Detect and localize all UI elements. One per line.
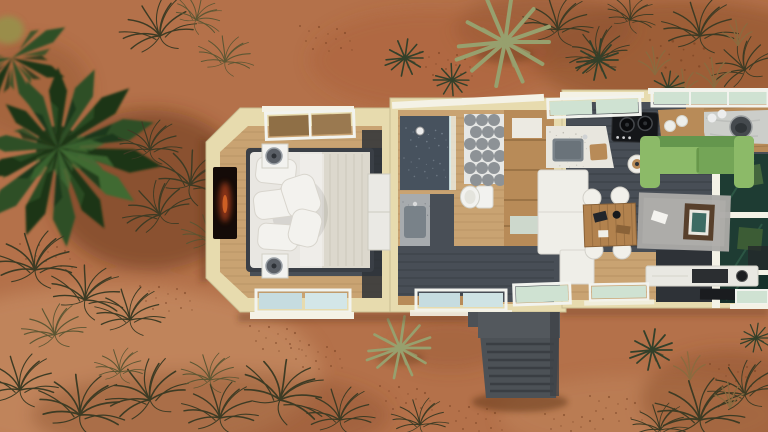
window-sill (250, 312, 354, 319)
plate (677, 116, 688, 127)
nightstand-top (262, 144, 288, 168)
framed-photo (691, 213, 706, 233)
accent-pattern-wall (464, 114, 506, 186)
dining-chair (611, 187, 629, 205)
window-sill (730, 304, 768, 309)
tray-coffee-table (683, 203, 715, 241)
vanity-sink (400, 194, 435, 246)
faucet (413, 202, 417, 206)
render-viewport (0, 0, 768, 432)
nightstand-bottom (262, 254, 288, 278)
living-top-window (652, 90, 768, 106)
round-speaker (737, 271, 748, 282)
napkin (598, 230, 608, 237)
great-room (538, 100, 768, 308)
console-screen (692, 269, 728, 283)
bedroom (213, 126, 390, 298)
artwork-flame (223, 195, 228, 213)
pendant-light (416, 127, 424, 135)
cutting-board (589, 143, 607, 160)
far-right-bottom-window (730, 290, 768, 309)
porch-side-step (468, 312, 478, 327)
storage-box (512, 118, 542, 138)
plate (665, 121, 676, 132)
dining-bottom-window (584, 283, 654, 305)
media-console (646, 266, 758, 286)
aerial-floorplan-render (0, 0, 768, 432)
wardrobe (368, 174, 390, 250)
shower (400, 116, 456, 190)
bathroom-dark-floor (430, 194, 454, 246)
sofa-arm (640, 136, 660, 188)
tiny-house (200, 88, 768, 322)
porch-side-shade (550, 312, 559, 396)
porch-steps (486, 344, 554, 391)
kitchen-faucet (583, 135, 588, 140)
porch-landing (478, 312, 560, 338)
cup (708, 114, 717, 123)
toilet (461, 186, 494, 208)
bedroom-bottom-window (250, 290, 354, 319)
cup (718, 110, 727, 119)
entry-porch (468, 312, 568, 412)
sofa-arm (734, 136, 754, 188)
folded-towels (510, 216, 542, 234)
